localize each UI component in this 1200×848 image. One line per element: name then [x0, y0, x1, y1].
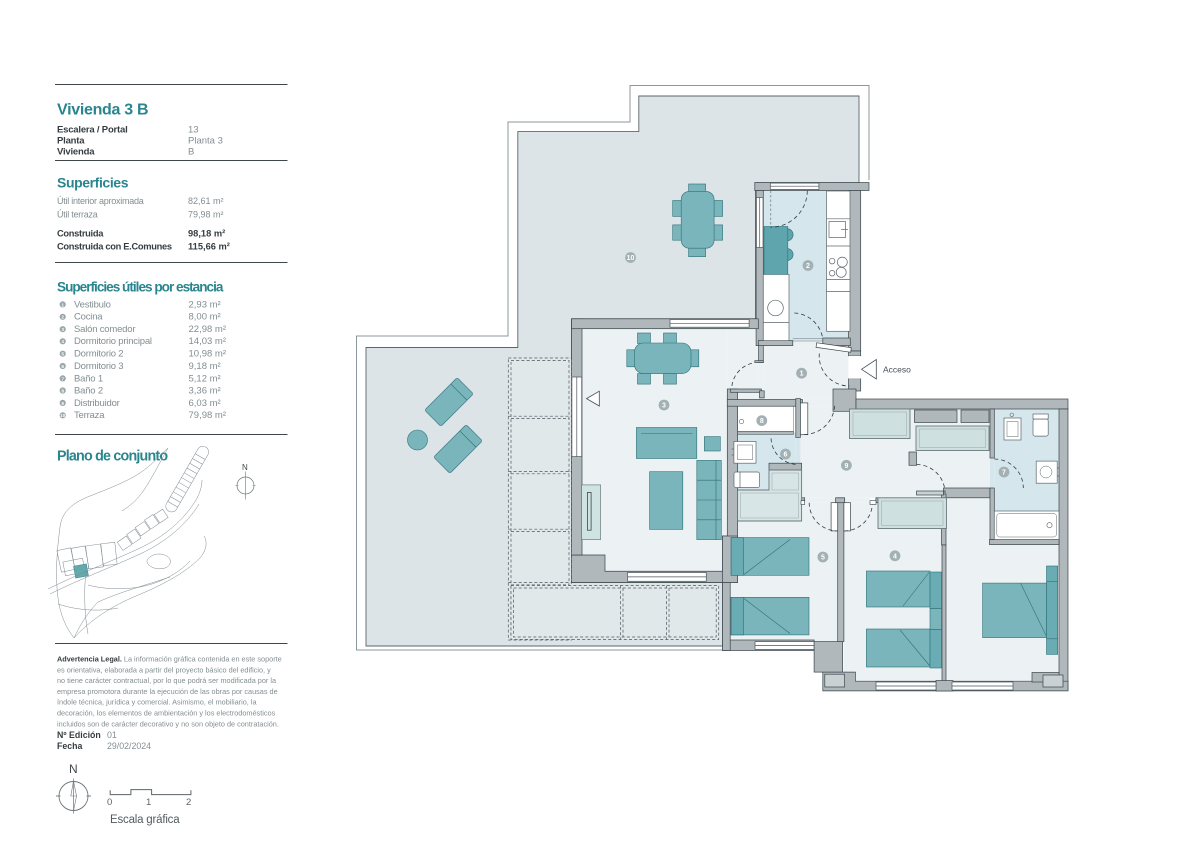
svg-text:Plano de conjunto: Plano de conjunto: [57, 449, 168, 465]
svg-text:N: N: [69, 762, 78, 776]
svg-text:Útil terraza: Útil terraza: [57, 209, 98, 219]
svg-text:01: 01: [107, 730, 117, 740]
svg-text:B: B: [188, 147, 194, 158]
svg-text:3,36 m²: 3,36 m²: [189, 385, 221, 396]
svg-text:3: 3: [662, 403, 666, 410]
svg-text:Construida con E.Comunes: Construida con E.Comunes: [57, 241, 172, 251]
svg-text:Superficies útiles por estanci: Superficies útiles por estancia: [57, 280, 224, 295]
svg-text:2,93 m²: 2,93 m²: [189, 299, 221, 310]
svg-text:empresa promotora durante la e: empresa promotora durante la ejecución d…: [57, 687, 278, 696]
svg-text:0: 0: [107, 797, 112, 808]
svg-text:Advertencia Legal. La informac: Advertencia Legal. La información gráfic…: [57, 655, 282, 664]
svg-text:Terraza: Terraza: [74, 410, 105, 421]
svg-text:Dormitorio principal: Dormitorio principal: [74, 336, 152, 347]
svg-text:N: N: [242, 463, 248, 472]
svg-text:Salón comedor: Salón comedor: [74, 324, 135, 335]
svg-text:10: 10: [60, 413, 65, 418]
svg-text:5,12 m²: 5,12 m²: [189, 373, 221, 384]
svg-text:incluidos son de carácter deco: incluidos son de carácter decorativo y n…: [57, 719, 279, 728]
svg-text:13: 13: [188, 125, 199, 136]
svg-text:Escalera / Portal: Escalera / Portal: [57, 125, 128, 136]
svg-text:Cocina: Cocina: [74, 312, 103, 323]
svg-text:5: 5: [821, 555, 825, 562]
svg-text:Baño 2: Baño 2: [74, 385, 103, 396]
svg-text:79,98 m²: 79,98 m²: [188, 209, 224, 219]
svg-text:es orientativa, elaborada a pa: es orientativa, elaborada a partir del p…: [57, 665, 271, 674]
svg-text:82,61 m²: 82,61 m²: [188, 196, 224, 206]
svg-text:Planta 3: Planta 3: [188, 136, 223, 147]
svg-text:Distribuidor: Distribuidor: [74, 398, 120, 409]
svg-text:4: 4: [893, 553, 897, 560]
svg-text:2: 2: [186, 797, 191, 808]
svg-text:7: 7: [1002, 470, 1006, 477]
svg-text:Acceso: Acceso: [883, 365, 911, 375]
svg-text:22,98 m²: 22,98 m²: [189, 324, 227, 335]
svg-text:Vestibulo: Vestibulo: [74, 299, 111, 310]
svg-text:79,98 m²: 79,98 m²: [189, 410, 227, 421]
svg-text:Vivienda 3 B: Vivienda 3 B: [57, 102, 148, 119]
svg-text:10: 10: [627, 255, 635, 262]
svg-text:8: 8: [760, 418, 764, 425]
svg-text:Escala gráfica: Escala gráfica: [110, 814, 180, 826]
svg-text:8,00 m²: 8,00 m²: [189, 312, 221, 323]
svg-text:decoración, los elementos de a: decoración, los elementos de ambientació…: [57, 709, 276, 718]
svg-text:Dormitorio 3: Dormitorio 3: [74, 361, 123, 372]
svg-text:Construida: Construida: [57, 228, 104, 238]
svg-text:Fecha: Fecha: [57, 741, 83, 751]
svg-text:no tiene carácter contractual,: no tiene carácter contractual, por lo qu…: [57, 676, 277, 685]
svg-text:6: 6: [784, 452, 788, 459]
svg-text:115,66 m²: 115,66 m²: [188, 241, 230, 251]
svg-text:1: 1: [146, 797, 151, 808]
svg-text:98,18 m²: 98,18 m²: [188, 228, 225, 238]
svg-text:Baño 1: Baño 1: [74, 373, 103, 384]
svg-text:Planta: Planta: [57, 136, 85, 147]
svg-text:Vivienda: Vivienda: [57, 147, 95, 158]
svg-text:6,03 m²: 6,03 m²: [189, 398, 221, 409]
svg-text:Dormitorio 2: Dormitorio 2: [74, 349, 123, 360]
svg-text:29/02/2024: 29/02/2024: [107, 741, 151, 751]
svg-text:9: 9: [844, 463, 848, 470]
svg-text:14,03 m²: 14,03 m²: [189, 336, 227, 347]
svg-text:2: 2: [806, 263, 810, 270]
svg-text:Nº Edición: Nº Edición: [57, 730, 101, 740]
svg-text:Superficies: Superficies: [57, 175, 129, 191]
svg-text:10,98 m²: 10,98 m²: [189, 349, 227, 360]
svg-text:1: 1: [800, 371, 804, 378]
svg-text:9,18 m²: 9,18 m²: [189, 361, 221, 372]
svg-text:índole técnica, jurídica y com: índole técnica, jurídica y comercial. As…: [57, 698, 257, 707]
svg-text:Útil interior aproximada: Útil interior aproximada: [57, 196, 144, 206]
